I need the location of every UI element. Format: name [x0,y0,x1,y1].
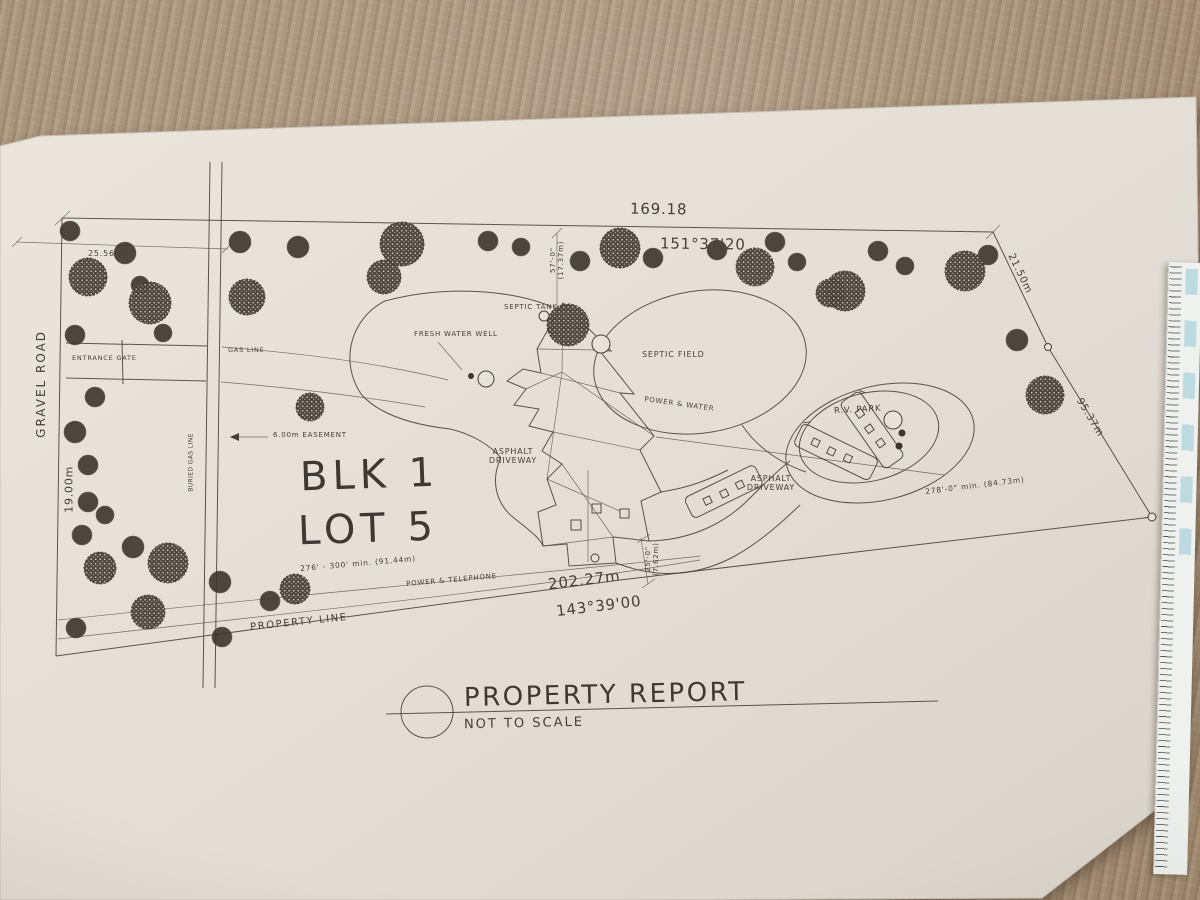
tree-solid [512,238,530,256]
tree-solid [788,253,806,271]
tree-detailed [131,595,165,629]
scale-note: NOT TO SCALE [464,716,584,733]
paper-sheet [0,97,1199,900]
tree-solid [478,231,498,251]
tree-solid [260,591,280,611]
dim-left-width: 19.00m [64,455,77,523]
tree-detailed [380,222,424,266]
block-label: BLK 1 [299,450,440,501]
asphalt-word: ASPHALT [493,447,534,456]
tree-solid [212,627,232,647]
setback-south-metric: (7.62m) [652,542,660,575]
tree-solid [78,492,98,512]
tree-solid [72,525,92,545]
septic-field-label: SEPTIC FIELD [642,350,705,359]
entrance-gate-label: ENTRANCE GATE [72,355,137,362]
asphalt-driveway-east-label: ASPHALT DRIVEWAY [728,474,814,492]
tree-detailed [280,574,310,604]
tree-solid [65,325,85,345]
tree-solid [96,506,114,524]
driveway-word: DRIVEWAY [747,483,795,492]
setback-north-label: 57'-0" (17.37m) [549,215,565,305]
tree-solid [60,221,80,241]
tree-detailed [296,393,324,421]
tree-solid [78,455,98,475]
gas-line-label: GAS LINE [228,347,265,354]
tree-solid [229,231,251,253]
easement-label: 6.00m EASEMENT [273,431,347,439]
tree-solid [287,236,309,258]
tree-detailed [229,279,265,315]
tree-detailed [945,251,985,291]
tree-solid [209,571,231,593]
tree-detailed [600,228,640,268]
tree-solid [765,232,785,252]
tree-detailed [1026,376,1064,414]
setback-south-label: 25'-0" (7.62m) [644,519,660,599]
tree-solid [868,241,888,261]
fresh-water-well-label: FRESH WATER WELL [414,330,498,338]
setback-south-imperial: 25'-0" [644,546,652,572]
dim-offset: 25.56m [88,249,124,258]
plan-drawing [0,0,1200,900]
driveway-word: DRIVEWAY [489,456,537,465]
tree-detailed [148,543,188,583]
tree-solid [1006,329,1028,351]
gravel-road-label: GRAVEL ROAD [35,328,49,440]
dim-top-length: 169.18 [630,201,688,219]
page-title: PROPERTY REPORT [464,678,747,714]
tree-solid [66,618,86,638]
buried-gas-line-label: BURIED GAS LINE [189,418,196,506]
tree-solid [64,421,86,443]
tree-solid [85,387,105,407]
setback-north-metric: (17.37m) [557,241,565,280]
lot-label: LOT 5 [297,504,438,555]
photo-of-property-plan: 169.18 151°37'20 25.56m GRAVEL ROAD 19.0… [0,0,1200,900]
tree-solid [570,251,590,271]
septic-tank-label: SEPTIC TANK [504,303,558,311]
tree-solid [154,324,172,342]
tree-solid [896,257,914,275]
asphalt-driveway-center-label: ASPHALT DRIVEWAY [470,447,556,465]
dim-top-bearing: 151°37'20 [660,235,746,253]
tree-solid [122,536,144,558]
tree-detailed [816,279,844,307]
tree-detailed [129,282,171,324]
tree-detailed [69,258,107,296]
asphalt-word: ASPHALT [751,474,792,483]
setback-north-imperial: 57'-0" [549,247,557,273]
ruler-blue-cells [1179,269,1198,559]
tree-detailed [84,552,116,584]
